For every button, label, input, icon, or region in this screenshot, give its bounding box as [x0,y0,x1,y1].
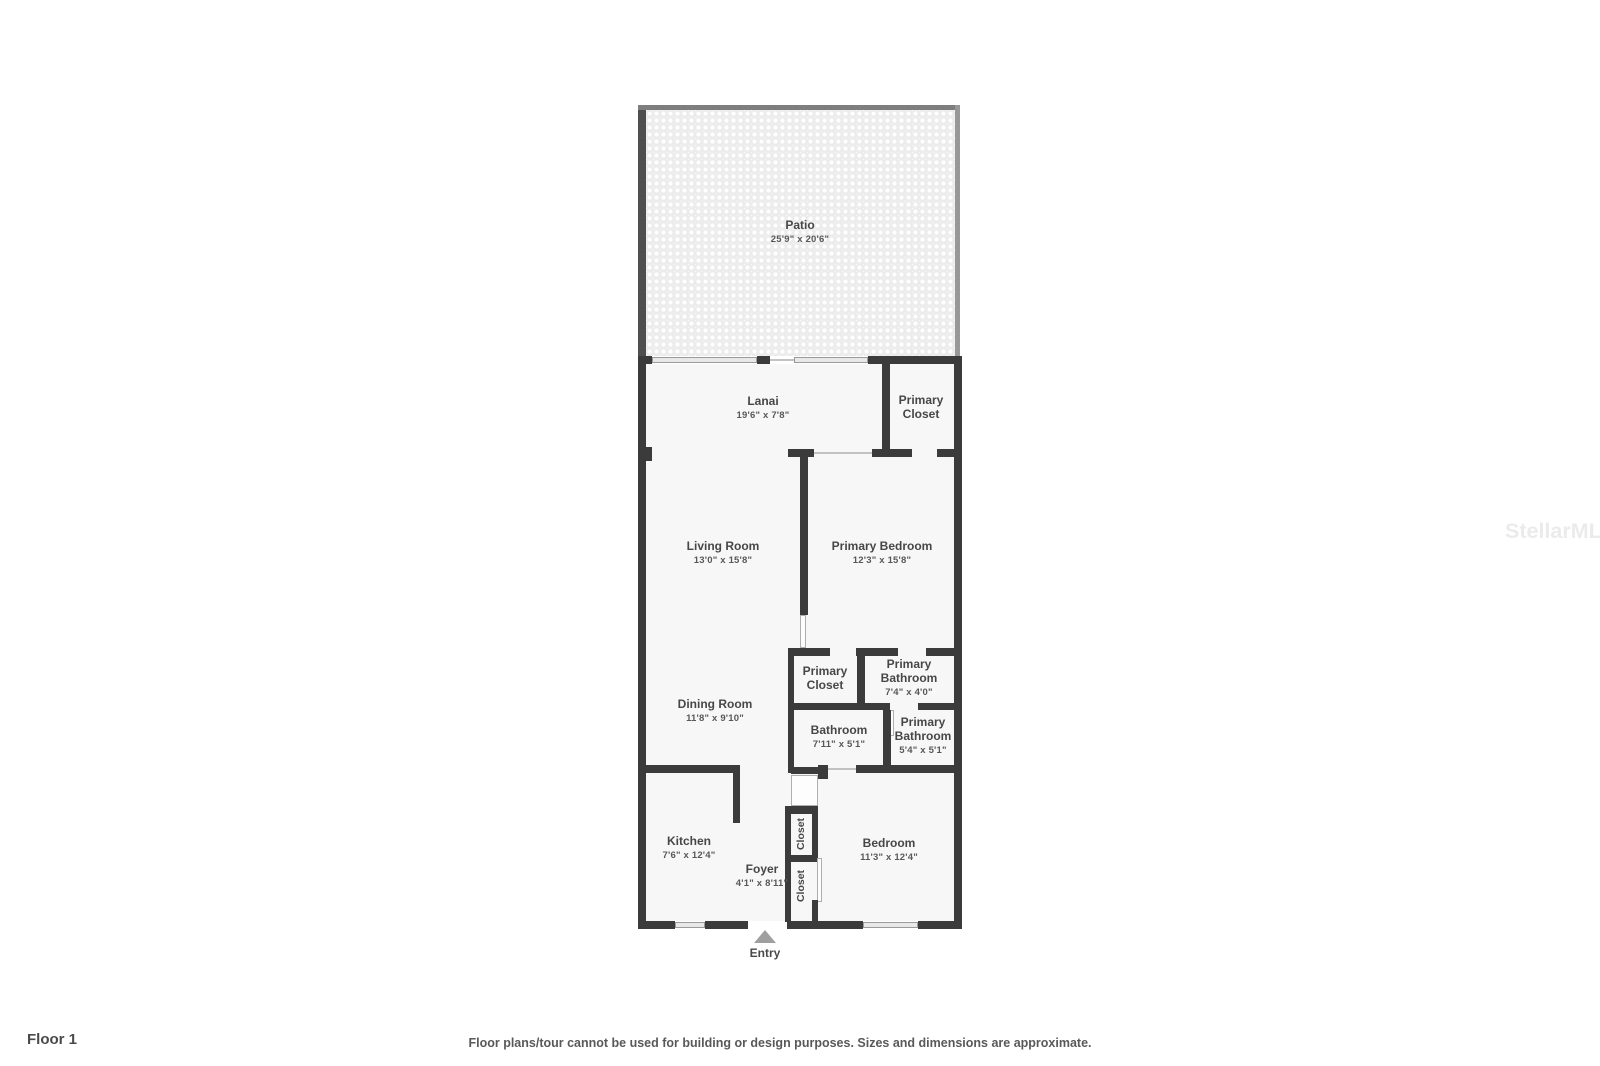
room-name: Living Room [663,540,783,554]
room-label-foyer: Foyer 4'1" x 8'11" [717,863,807,889]
room-label-kitchen: Kitchen 7'6" x 12'4" [639,835,739,861]
patio-wall-right [955,105,960,356]
room-label-bathroom: Bathroom 7'11" x 5'1" [794,724,884,750]
wall [733,773,740,823]
wall [818,765,828,779]
room-name: Closet [795,813,807,855]
room-label-living-room: Living Room 13'0" x 15'8" [663,540,783,566]
room-label-dining-room: Dining Room 11'8" x 9'10" [655,698,775,724]
patio-wall-left [638,105,646,356]
door-swing [791,775,818,806]
room-dims: 5'4" x 5'1" [889,745,957,756]
room-name: Kitchen [639,835,739,849]
room-dims: 7'6" x 12'4" [639,850,739,861]
room-label-primary-bathroom-lower: Primary Bathroom 5'4" x 5'1" [889,716,957,756]
room-name: Closet [795,865,807,907]
wall [788,703,890,710]
door-opening [828,768,856,770]
wall [787,921,863,929]
entry-label: Entry [750,946,781,960]
wall [918,921,962,929]
room-dims: 7'11" x 5'1" [794,739,884,750]
room-dims: 7'4" x 4'0" [873,687,945,698]
room-name: Primary Closet [890,394,952,422]
room-dims: 19'6" x 7'8" [713,410,813,421]
room-name: Patio [740,219,860,233]
wall [937,449,962,457]
slider-opening [770,359,794,361]
room-label-primary-closet-upper: Primary Closet [890,394,952,422]
slider-opening [814,452,872,454]
room-name: Bathroom [794,724,884,738]
wall [800,453,808,615]
window [863,922,918,928]
door-swing [800,615,806,648]
entry-arrow-icon [754,930,776,943]
wall [812,900,818,922]
wall [872,449,912,457]
floor-plan-page: Patio 25'9" x 20'6" Lanai 19'6" x 7'8" P… [0,0,1600,1066]
wall [638,765,740,773]
window [794,357,868,363]
wall [757,356,770,364]
room-name: Dining Room [655,698,775,712]
wall [638,356,652,364]
room-label-closet-upper: Closet [795,813,807,855]
room-dims: 13'0" x 15'8" [663,555,783,566]
room-label-primary-closet-lower: Primary Closet [795,665,855,693]
wall [788,648,794,773]
room-label-bedroom: Bedroom 11'3" x 12'4" [834,837,944,863]
wall [812,806,818,858]
room-label-closet-lower: Closet [795,865,807,907]
room-label-primary-bedroom: Primary Bedroom 12'3" x 15'8" [812,540,952,566]
disclaimer-text: Floor plans/tour cannot be used for buil… [180,1036,1380,1050]
room-dims: 12'3" x 15'8" [812,555,952,566]
wall [926,648,962,656]
floor-label: Floor 1 [27,1031,77,1048]
room-dims: 25'9" x 20'6" [740,234,860,245]
wall [954,356,962,929]
wall [638,921,675,929]
window [652,357,757,363]
room-label-lanai: Lanai 19'6" x 7'8" [713,395,813,421]
room-dims: 11'3" x 12'4" [834,852,944,863]
wall [785,855,818,862]
room-name: Bedroom [834,837,944,851]
room-label-primary-bathroom-upper: Primary Bathroom 7'4" x 4'0" [873,658,945,698]
wall [856,765,955,773]
wall [918,703,962,710]
room-name: Primary Bedroom [812,540,952,554]
room-name: Primary Closet [795,665,855,693]
door-swing [817,858,822,902]
patio-wall-top [638,105,960,110]
wall [705,921,748,929]
wall [882,360,890,455]
room-name: Foyer [717,863,807,877]
wall [788,648,830,656]
room-name: Primary Bathroom [889,716,957,744]
watermark: StellarMLS [1505,519,1600,544]
room-dims: 4'1" x 8'11" [717,878,807,889]
room-label-patio: Patio 25'9" x 20'6" [740,219,860,245]
room-name: Primary Bathroom [873,658,945,686]
window [675,922,705,928]
wall [640,447,652,461]
room-dims: 11'8" x 9'10" [655,713,775,724]
wall [857,654,865,706]
room-name: Lanai [713,395,813,409]
